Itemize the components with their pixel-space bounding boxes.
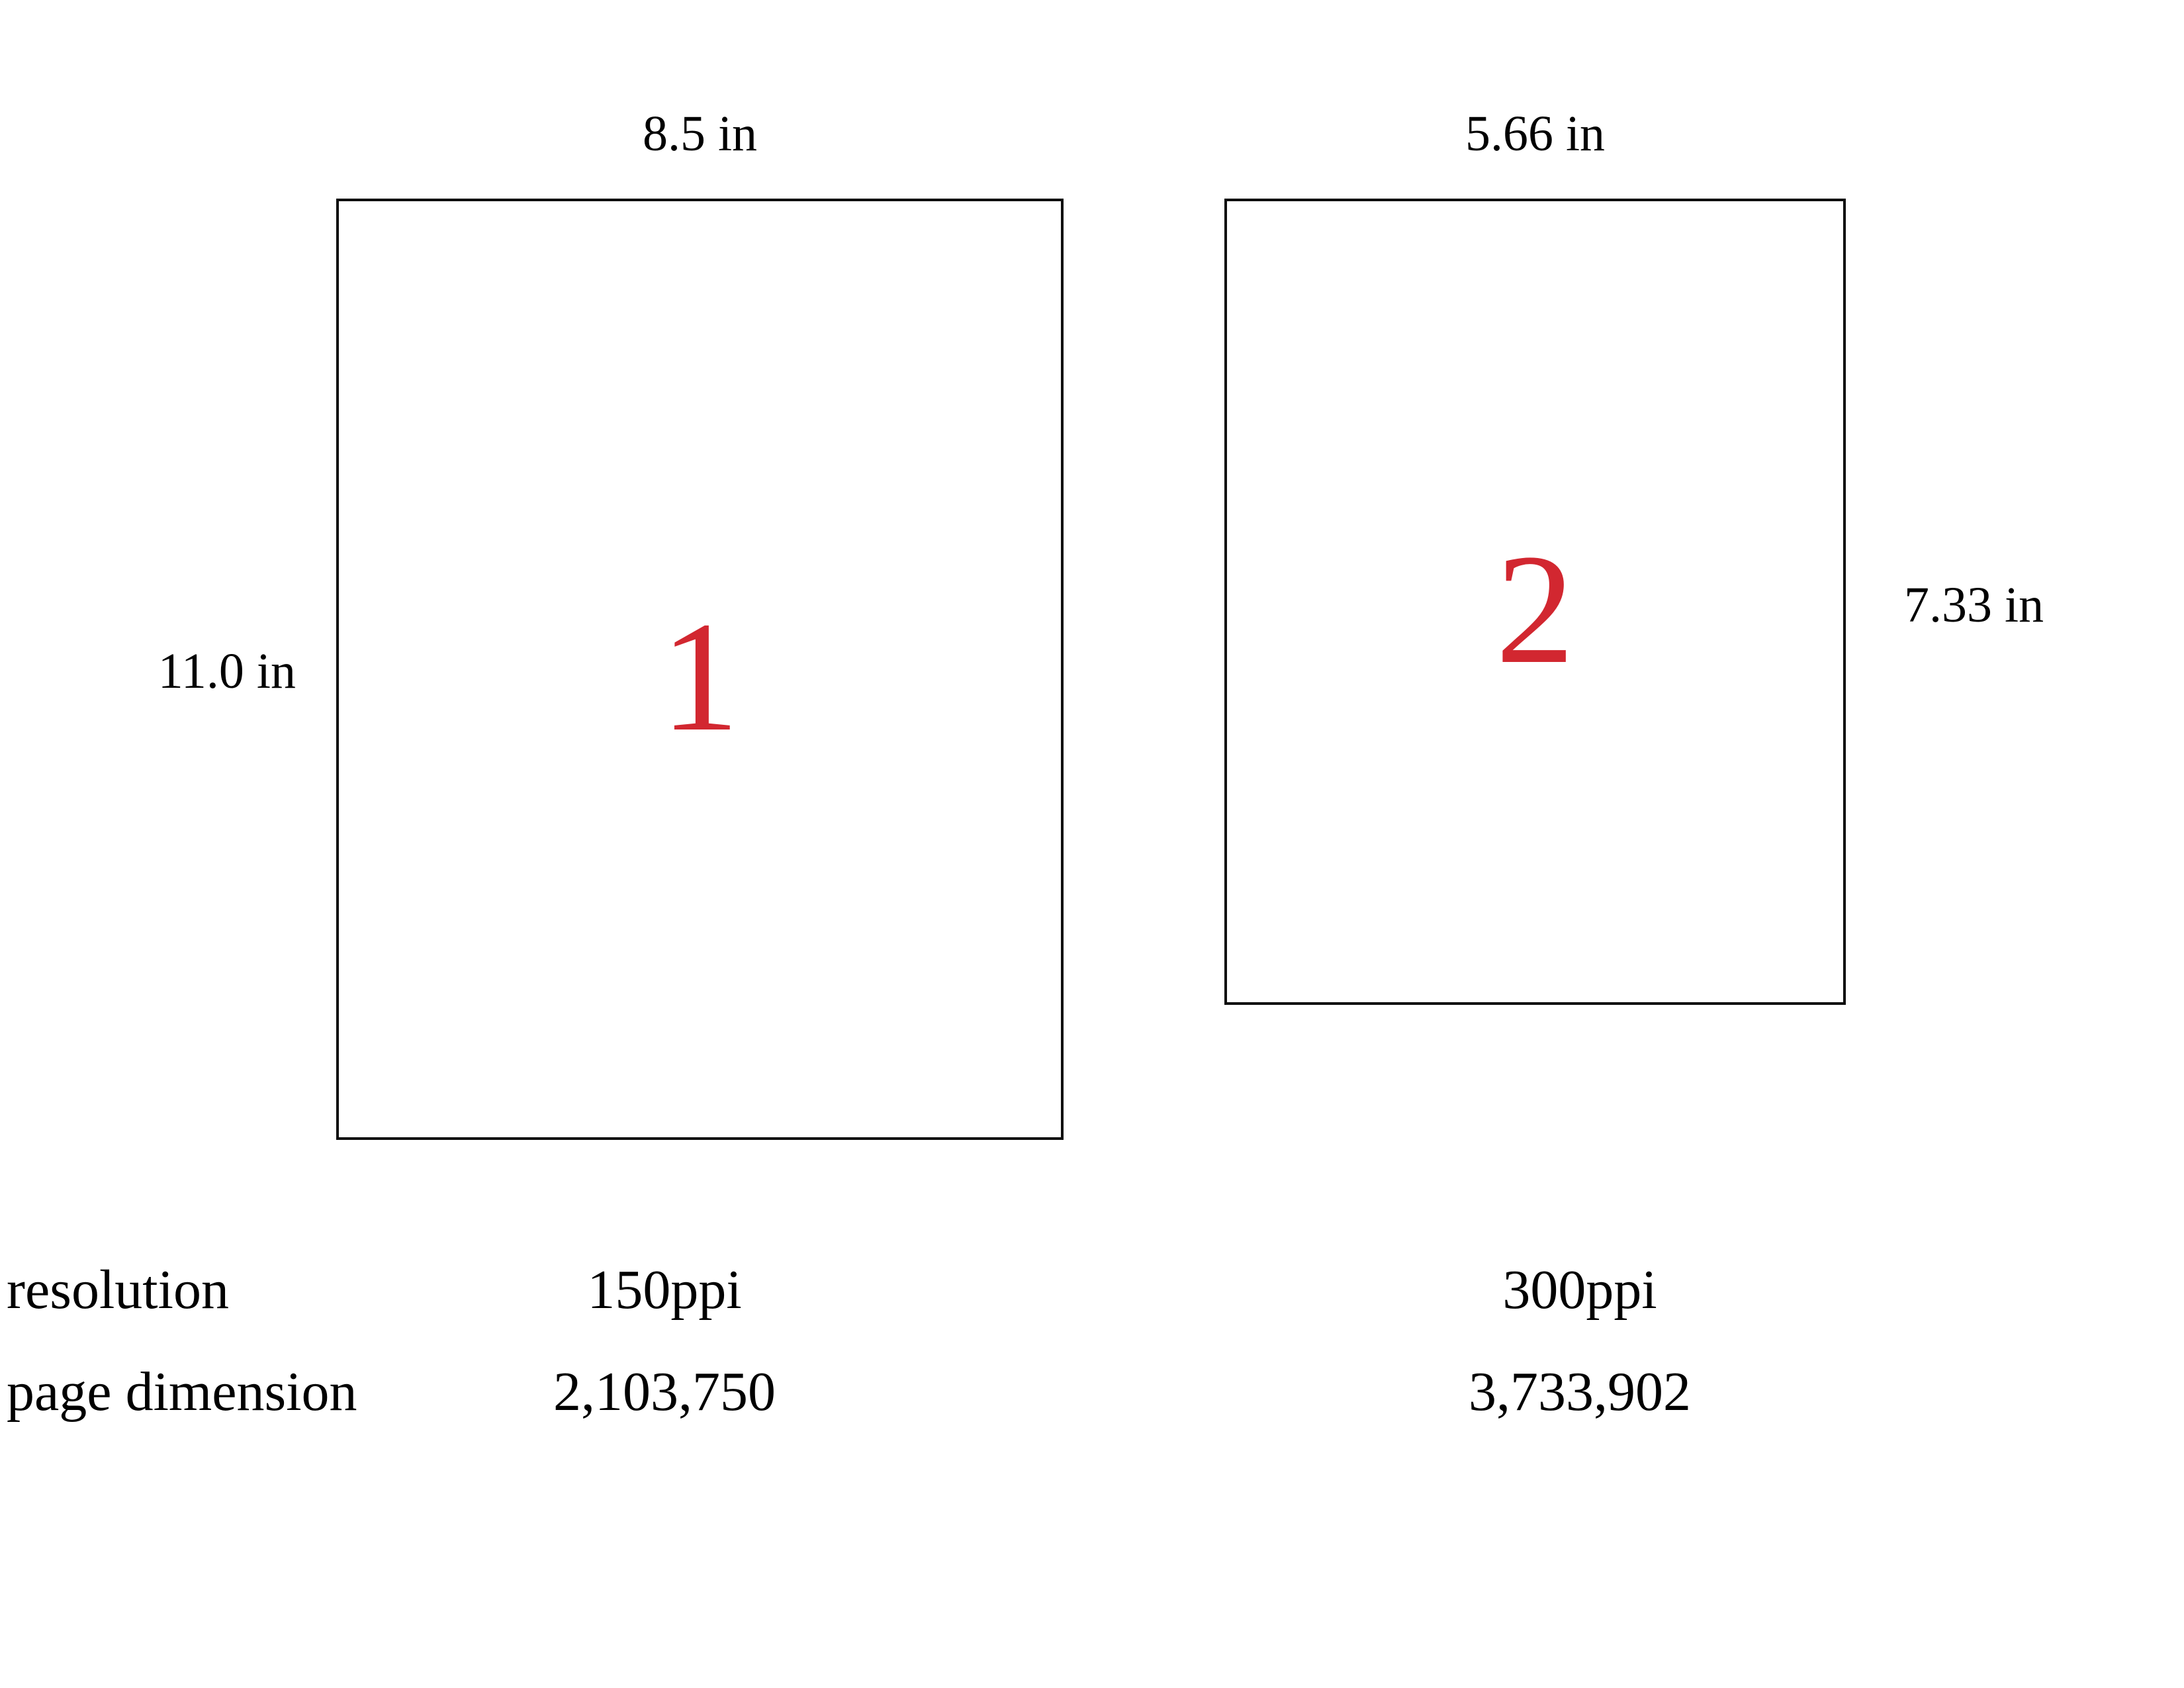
page-2-width-label: 5.66 in: [1224, 104, 1846, 164]
page-1-dimension-value: 2,103,750: [466, 1359, 863, 1426]
page-1-resolution-value: 150ppi: [466, 1257, 863, 1324]
page-size-comparison-figure: 8.5 in 5.66 in 1 2 11.0 in 7.33 in resol…: [0, 0, 2184, 1688]
page-1-rectangle: 1: [336, 199, 1064, 1140]
page-2-rectangle: 2: [1224, 199, 1846, 1005]
page-2-number: 2: [1496, 531, 1574, 688]
page-2-dimension-value: 3,733,902: [1381, 1359, 1778, 1426]
resolution-row-label: resolution: [7, 1257, 229, 1324]
page-1-width-label: 8.5 in: [336, 104, 1064, 164]
page-1-height-label: 11.0 in: [86, 641, 296, 702]
page-dimension-row-label: page dimension: [7, 1359, 357, 1426]
page-2-height-label: 7.33 in: [1904, 575, 2044, 635]
page-2-resolution-value: 300ppi: [1381, 1257, 1778, 1324]
page-1-number: 1: [660, 598, 739, 756]
